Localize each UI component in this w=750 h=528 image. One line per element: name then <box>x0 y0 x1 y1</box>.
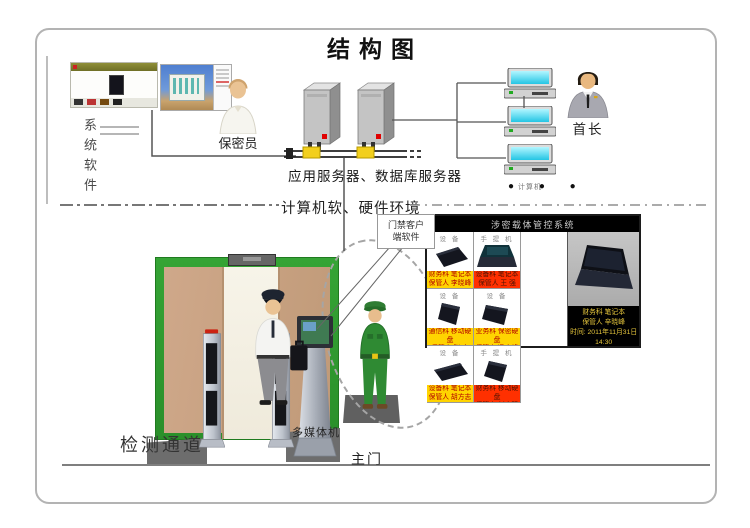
computer-label: 计算机 <box>504 182 556 192</box>
application-server-icon <box>300 82 344 157</box>
panel-title: 涉密载体管控系统 <box>427 216 639 232</box>
laptop-icon <box>474 242 520 271</box>
soldier-icon <box>352 296 398 423</box>
laptop-icon <box>474 299 520 328</box>
access-client-line2: 端软件 <box>392 232 419 243</box>
secrecy-officer-label: 保密员 <box>210 133 266 152</box>
software-screenshot-icon <box>70 62 158 108</box>
laptop-icon <box>474 356 520 385</box>
device-cell: 手 提 机 设备科 笔记本保管人 王 强 <box>474 232 521 289</box>
structure-diagram: 结构图 系统软件 保密员 <box>0 0 750 528</box>
system-software-label: 系统软件 <box>80 118 99 198</box>
access-client-line1: 门禁客户 <box>388 220 424 231</box>
detail-caption: 财务科 笔记本 保管人 辛晓峰 时间: 2011年11月31日 14:30 <box>568 306 639 346</box>
secrecy-officer-icon <box>214 76 262 139</box>
page-title: 结构图 <box>0 30 750 64</box>
device-cell: 设 备 业务科 保密硬盘保管人 冯志峰 <box>474 289 521 346</box>
chief-icon <box>564 66 612 123</box>
gate-sensor-icon <box>228 254 276 266</box>
chief-label: 首长 <box>564 118 612 138</box>
device-cell: 设 备 通信科 移动硬盘保管人 张 杰 <box>427 289 474 346</box>
gate-guard-icon <box>236 284 310 431</box>
access-client-callout: 门禁客户 端软件 <box>377 214 435 249</box>
device-detail: 财务科 笔记本 保管人 辛晓峰 时间: 2011年11月31日 14:30 <box>567 232 639 346</box>
laptop-icon <box>427 299 473 328</box>
media-control-panel: 涉密载体管控系统 设 备 财务科 笔记本保管人 李晓峰 手 提 机 设备科 笔记… <box>425 214 641 348</box>
servers-label: 应用服务器、数据库服务器 <box>288 165 462 185</box>
laptop-icon <box>427 356 473 385</box>
computer-icon: 计算机 <box>504 144 556 192</box>
device-grid: 设 备 财务科 笔记本保管人 李晓峰 手 提 机 设备科 笔记本保管人 王 强 … <box>427 232 567 346</box>
detection-channel-label: 检测通道 <box>120 431 204 457</box>
device-cell: 手 提 机 财务科 移动硬盘保管人 刘志强 <box>474 346 521 403</box>
database-server-icon <box>354 82 398 157</box>
device-cell: 设 备 设备科 笔记本保管人 胡方志 <box>427 346 474 403</box>
laptop-large-icon <box>568 232 639 306</box>
main-gate-label: 主门 <box>351 449 383 469</box>
